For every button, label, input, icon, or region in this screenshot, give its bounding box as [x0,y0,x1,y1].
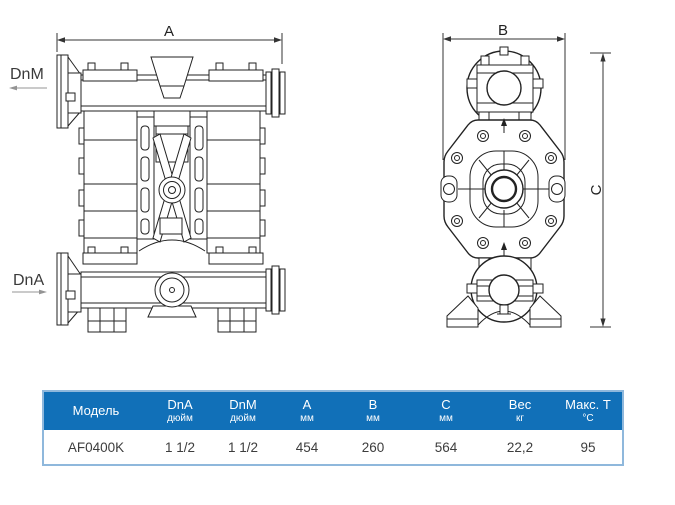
column-header-c: C мм [406,392,486,430]
column-header-max-temp: Макс. Т °C [554,392,622,430]
cell-a: 454 [274,430,340,464]
column-header-weight: Вес кг [486,392,554,430]
cell-c: 564 [406,430,486,464]
cell-dna: 1 1/2 [148,430,212,464]
spec-table-header-row: Модель DnA дюйм DnM дюйм A мм B мм C мм [44,392,622,430]
cell-max-temp: 95 [554,430,622,464]
dim-c-label: C [588,184,605,195]
spec-table: Модель DnA дюйм DnM дюйм A мм B мм C мм [42,390,624,466]
suction-arrow-icon [39,290,47,295]
pump-datasheet-page: A B C DnM DnA [0,0,675,505]
cell-weight: 22,2 [486,430,554,464]
suction-port-label: DnA [13,272,44,289]
discharge-port-label: DnM [10,66,44,83]
column-header-a: A мм [274,392,340,430]
pump-technical-drawing: A B C DnM DnA [0,0,675,378]
column-header-b: B мм [340,392,406,430]
front-left-chamber [79,111,137,253]
front-top-manifold [81,57,285,117]
front-suction-flange [57,253,81,325]
front-bottom-manifold [81,247,285,317]
side-view-drawing [441,47,565,327]
suction-port-callout: DnA [12,272,47,294]
front-discharge-flange [57,55,81,128]
front-right-chamber [207,111,265,253]
dim-a-label: A [164,23,174,40]
cell-model: AF0400K [44,430,148,464]
discharge-port-callout: DnM [9,66,47,90]
dimension-c: C [588,53,611,327]
column-header-dna: DnA дюйм [148,392,212,430]
dim-b-label: B [498,22,508,39]
column-header-model: Модель [44,392,148,430]
front-center-air-section [137,111,207,251]
cell-dnm: 1 1/2 [212,430,274,464]
column-header-dnm: DnM дюйм [212,392,274,430]
spec-table-data-row: AF0400K 1 1/2 1 1/2 454 260 564 22,2 95 [44,430,622,464]
side-top-manifold [467,47,543,125]
front-view-drawing [57,55,285,332]
side-body-cover [441,118,565,258]
discharge-arrow-icon [9,86,17,91]
cell-b: 260 [340,430,406,464]
